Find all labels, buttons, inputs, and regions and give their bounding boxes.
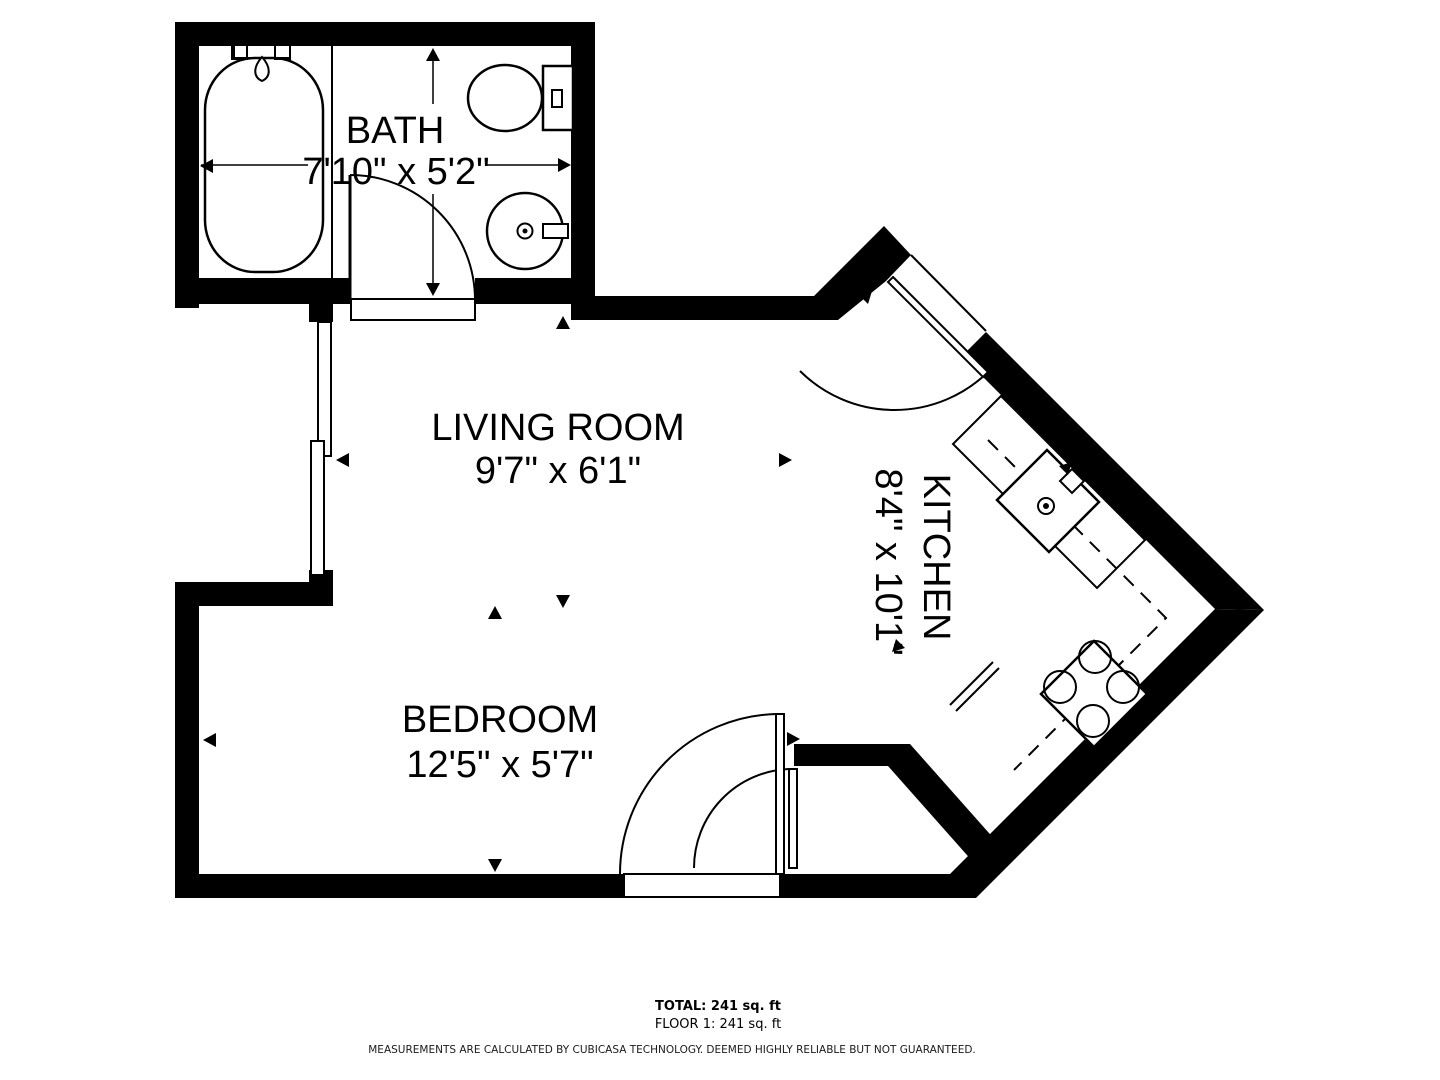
windows <box>311 322 331 575</box>
entry-door-arc <box>800 371 988 410</box>
bedroom-door-arc-small <box>694 769 789 868</box>
bath-right-wall <box>571 22 595 320</box>
window-1 <box>318 322 331 456</box>
bathroom-sink-drain-dot <box>523 229 528 234</box>
footer-floor-area: FLOOR 1: 241 sq. ft <box>655 1017 781 1032</box>
bath-door-sill <box>351 299 475 320</box>
bedroom-door-arc-large <box>620 714 776 874</box>
toilet-bowl <box>468 65 542 131</box>
entry-corner-wall <box>814 226 911 320</box>
wall-step <box>309 300 333 322</box>
living-arrow-right <box>779 453 792 467</box>
living-arrow-up <box>556 316 570 329</box>
room-label-kitchen: KITCHEN <box>915 474 957 641</box>
bedroom-door-sill <box>624 874 780 897</box>
bedroom-door-leaf-small <box>789 769 797 868</box>
room-labels: BATH 7'10" x 5'2" LIVING ROOM 9'7" x 6'1… <box>302 110 957 786</box>
room-dims-bedroom: 12'5" x 5'7" <box>406 744 593 786</box>
room-dims-kitchen: 8'4" x 10'1" <box>867 468 909 655</box>
bath-bottom-wall-right <box>475 278 595 304</box>
room-label-bedroom: BEDROOM <box>402 699 598 741</box>
bedroom-arrow-up <box>488 606 502 619</box>
bedroom-arrow-down <box>488 859 502 872</box>
closet-diagonal-wall <box>888 744 1004 872</box>
bottom-wall-left <box>175 874 624 898</box>
counter-cap-line-1 <box>950 662 993 705</box>
window-2 <box>311 441 324 575</box>
living-arrow-down <box>556 595 570 608</box>
counter-cap-line-2 <box>956 668 999 711</box>
toilet-tank <box>543 66 573 130</box>
bedroom-arrow-left <box>203 733 216 747</box>
room-label-living: LIVING ROOM <box>431 407 684 449</box>
bedroom-left-wall <box>175 582 199 898</box>
room-dims-bath: 7'10" x 5'2" <box>302 151 489 193</box>
footer: TOTAL: 241 sq. ft FLOOR 1: 241 sq. ft ME… <box>368 999 976 1056</box>
bath-arrow-up <box>426 48 440 61</box>
entry-door-sill <box>911 255 986 331</box>
bedroom-door-leaf-large <box>776 714 784 874</box>
bath-left-wall <box>175 22 199 308</box>
kitchen-sink-drain-dot <box>1043 503 1049 509</box>
bedroom-arrow-right <box>787 732 800 746</box>
footer-disclaimer: MEASUREMENTS ARE CALCULATED BY CUBICASA … <box>368 1044 976 1056</box>
bath-arrow-down <box>426 283 440 296</box>
bathroom-sink-faucet <box>543 224 568 238</box>
living-top-wall <box>595 296 838 320</box>
floor-plan-canvas: BATH 7'10" x 5'2" LIVING ROOM 9'7" x 6'1… <box>0 0 1440 1080</box>
floor-plan-page: BATH 7'10" x 5'2" LIVING ROOM 9'7" x 6'1… <box>0 0 1440 1080</box>
footer-total-area: TOTAL: 241 sq. ft <box>655 999 781 1014</box>
room-label-bath: BATH <box>346 110 445 152</box>
room-dims-living: 9'7" x 6'1" <box>475 450 641 492</box>
bath-door-arc <box>350 175 475 300</box>
entry-door-leaf <box>888 277 988 377</box>
bottom-wall-right <box>780 874 976 898</box>
living-arrow-left <box>336 453 349 467</box>
bath-arrow-right <box>558 158 571 172</box>
